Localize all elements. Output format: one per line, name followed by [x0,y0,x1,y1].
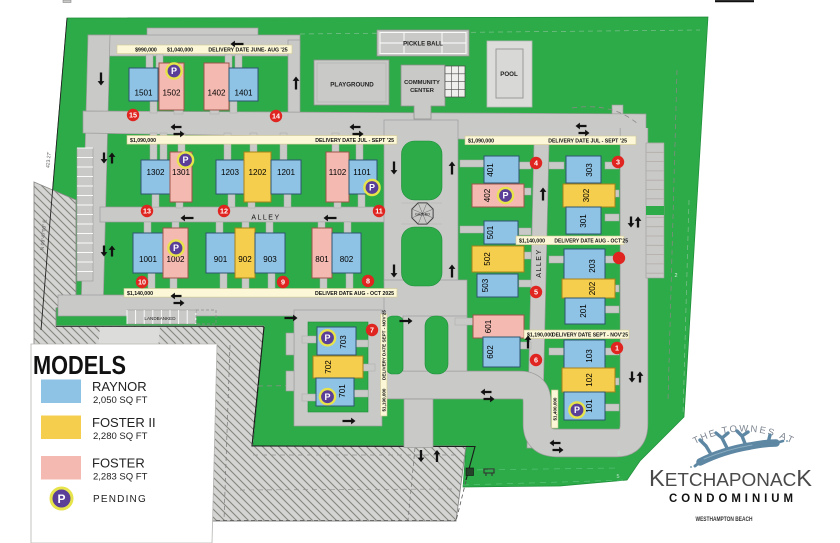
svg-text:$1,140,000: $1,140,000 [127,291,153,297]
svg-text:901: 901 [214,255,228,264]
svg-text:12: 12 [220,207,228,216]
svg-text:2,280 SQ FT: 2,280 SQ FT [93,431,148,442]
svg-text:P: P [173,243,179,253]
svg-text:301: 301 [579,214,588,228]
svg-text:801: 801 [315,255,329,264]
svg-text:703: 703 [339,335,348,349]
svg-text:CONDOMINIUM: CONDOMINIUM [669,493,797,505]
svg-text:5: 5 [534,288,538,297]
svg-text:5: 5 [617,474,620,480]
svg-text:1501: 1501 [134,89,153,98]
svg-text:13: 13 [143,207,151,216]
svg-text:3: 3 [616,158,620,167]
svg-text:PICKLE BALL: PICKLE BALL [403,42,443,48]
svg-text:PLAYGROUND: PLAYGROUND [330,82,374,89]
svg-text:DELIVERY DATE JUNE- AUG ’25: DELIVERY DATE JUNE- AUG ’25 [208,48,287,54]
svg-text:$990,000: $990,000 [135,48,157,54]
svg-text:1203: 1203 [221,168,240,177]
svg-text:P: P [574,405,580,415]
svg-text:POOL: POOL [500,71,518,78]
svg-text:6: 6 [534,356,538,365]
svg-text:1101: 1101 [353,168,371,177]
svg-text:DELIVERY DATE SEPT - NOV’25: DELIVERY DATE SEPT - NOV’25 [381,310,386,380]
svg-text:$1,400,000: $1,400,000 [552,397,557,420]
svg-text:502: 502 [483,252,492,266]
svg-text:4: 4 [534,159,538,168]
svg-text:P: P [369,183,375,193]
svg-text:FOSTER: FOSTER [92,456,145,471]
svg-text:ALLEY: ALLEY [536,248,543,277]
svg-text:P: P [57,492,65,506]
svg-text:1301: 1301 [172,168,191,177]
svg-text:RAYNOR: RAYNOR [92,379,147,394]
svg-text:FOSTER II: FOSTER II [92,415,156,430]
svg-text:1: 1 [615,344,619,353]
svg-text:DELIVERY DATE SEPT - NOV’25: DELIVERY DATE SEPT - NOV’25 [552,333,628,339]
svg-text:9: 9 [281,278,285,287]
svg-text:602: 602 [486,345,495,359]
svg-text:1001: 1001 [139,255,158,264]
svg-text:503: 503 [481,278,490,292]
svg-text:KETCHAPONACK: KETCHAPONACK [649,465,813,491]
svg-text:802: 802 [340,255,354,264]
svg-text:8: 8 [366,277,370,286]
svg-text:P: P [502,191,508,201]
svg-text:1102: 1102 [329,168,347,177]
svg-text:P: P [324,392,330,402]
svg-text:2,050 SQ FT: 2,050 SQ FT [93,395,148,406]
svg-text:1502: 1502 [162,89,181,98]
svg-text:101: 101 [585,399,594,413]
svg-text:$1,190,000: $1,190,000 [527,333,553,339]
svg-text:DELIVERY DATE JUL - SEPT ’25: DELIVERY DATE JUL - SEPT ’25 [315,138,394,144]
svg-text:201: 201 [579,304,588,318]
svg-text:6: 6 [618,451,621,457]
svg-text:$1,140,000: $1,140,000 [519,239,545,245]
svg-text:MODELS: MODELS [33,352,126,380]
svg-text:DELIVER DATE AUG - OCT 2025: DELIVER DATE AUG - OCT 2025 [315,291,394,297]
svg-text:1302: 1302 [146,168,165,177]
svg-text:902: 902 [238,255,252,264]
svg-text:11: 11 [375,207,383,216]
svg-text:702: 702 [324,360,333,374]
svg-text:1402: 1402 [207,89,226,98]
svg-text:402: 402 [483,188,492,202]
svg-text:2,283 SQ FT: 2,283 SQ FT [93,472,148,483]
svg-text:DELIVERY DATE AUG - OCT’25: DELIVERY DATE AUG - OCT’25 [554,239,628,245]
svg-text:2: 2 [675,273,678,279]
svg-text:P: P [324,333,330,343]
svg-text:14: 14 [272,112,280,121]
svg-text:WESTHAMPTON BEACH: WESTHAMPTON BEACH [696,516,753,523]
svg-text:DELIVERY DATE JUL - SEPT ’25: DELIVERY DATE JUL - SEPT ’25 [548,139,627,145]
svg-text:15: 15 [129,111,137,120]
svg-text:$1,040,000: $1,040,000 [167,48,193,54]
svg-text:COMMUNITY: COMMUNITY [404,80,440,86]
svg-text:PENDING: PENDING [93,494,147,505]
svg-text:10: 10 [138,278,146,287]
svg-text:701: 701 [338,384,347,398]
svg-text:501: 501 [486,225,495,239]
svg-text:$1,190,000: $1,190,000 [381,388,386,411]
svg-text:601: 601 [484,319,493,333]
svg-text:1201: 1201 [277,168,296,177]
svg-text:GAZEBO: GAZEBO [415,213,430,217]
svg-text:LANDBANKED: LANDBANKED [144,316,176,321]
svg-text:CENTER: CENTER [410,88,435,94]
svg-text:P: P [182,155,188,165]
svg-text:$1,090,000: $1,090,000 [130,138,156,144]
svg-text:302: 302 [582,188,591,202]
svg-text:ALLEY: ALLEY [251,215,280,222]
svg-text:303: 303 [585,163,594,177]
svg-text:103: 103 [585,349,594,363]
svg-text:202: 202 [588,281,597,295]
svg-text:203: 203 [588,259,597,273]
svg-text:7: 7 [370,326,374,335]
svg-text:P: P [171,66,177,76]
svg-text:1401: 1401 [234,89,253,98]
svg-text:102: 102 [585,373,594,387]
svg-text:1202: 1202 [248,168,267,177]
svg-text:$1,090,000: $1,090,000 [468,139,494,145]
svg-text:903: 903 [263,255,277,264]
svg-text:401: 401 [486,163,495,177]
